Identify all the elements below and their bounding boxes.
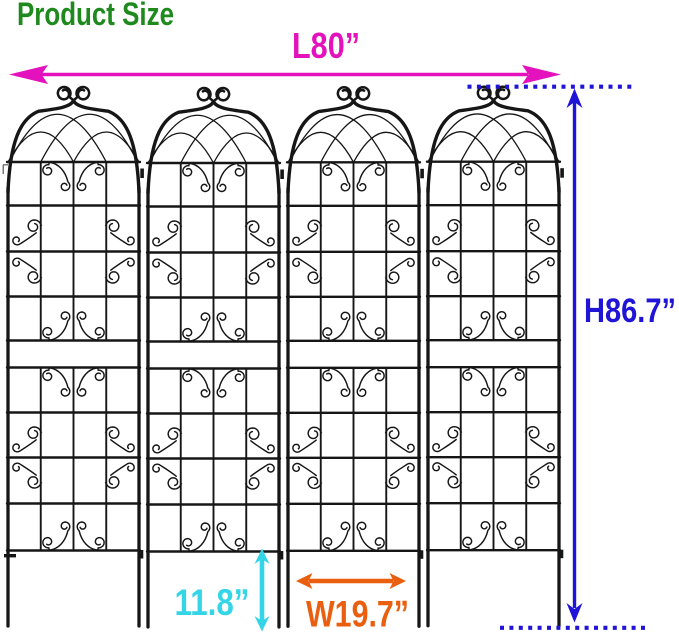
svg-text:11.8”: 11.8” bbox=[175, 582, 250, 623]
svg-text:W19.7”: W19.7” bbox=[306, 594, 409, 634]
svg-text:Product Size: Product Size bbox=[17, 0, 174, 32]
svg-text:H86.7”: H86.7” bbox=[584, 292, 676, 330]
svg-text:L80”: L80” bbox=[292, 25, 360, 66]
